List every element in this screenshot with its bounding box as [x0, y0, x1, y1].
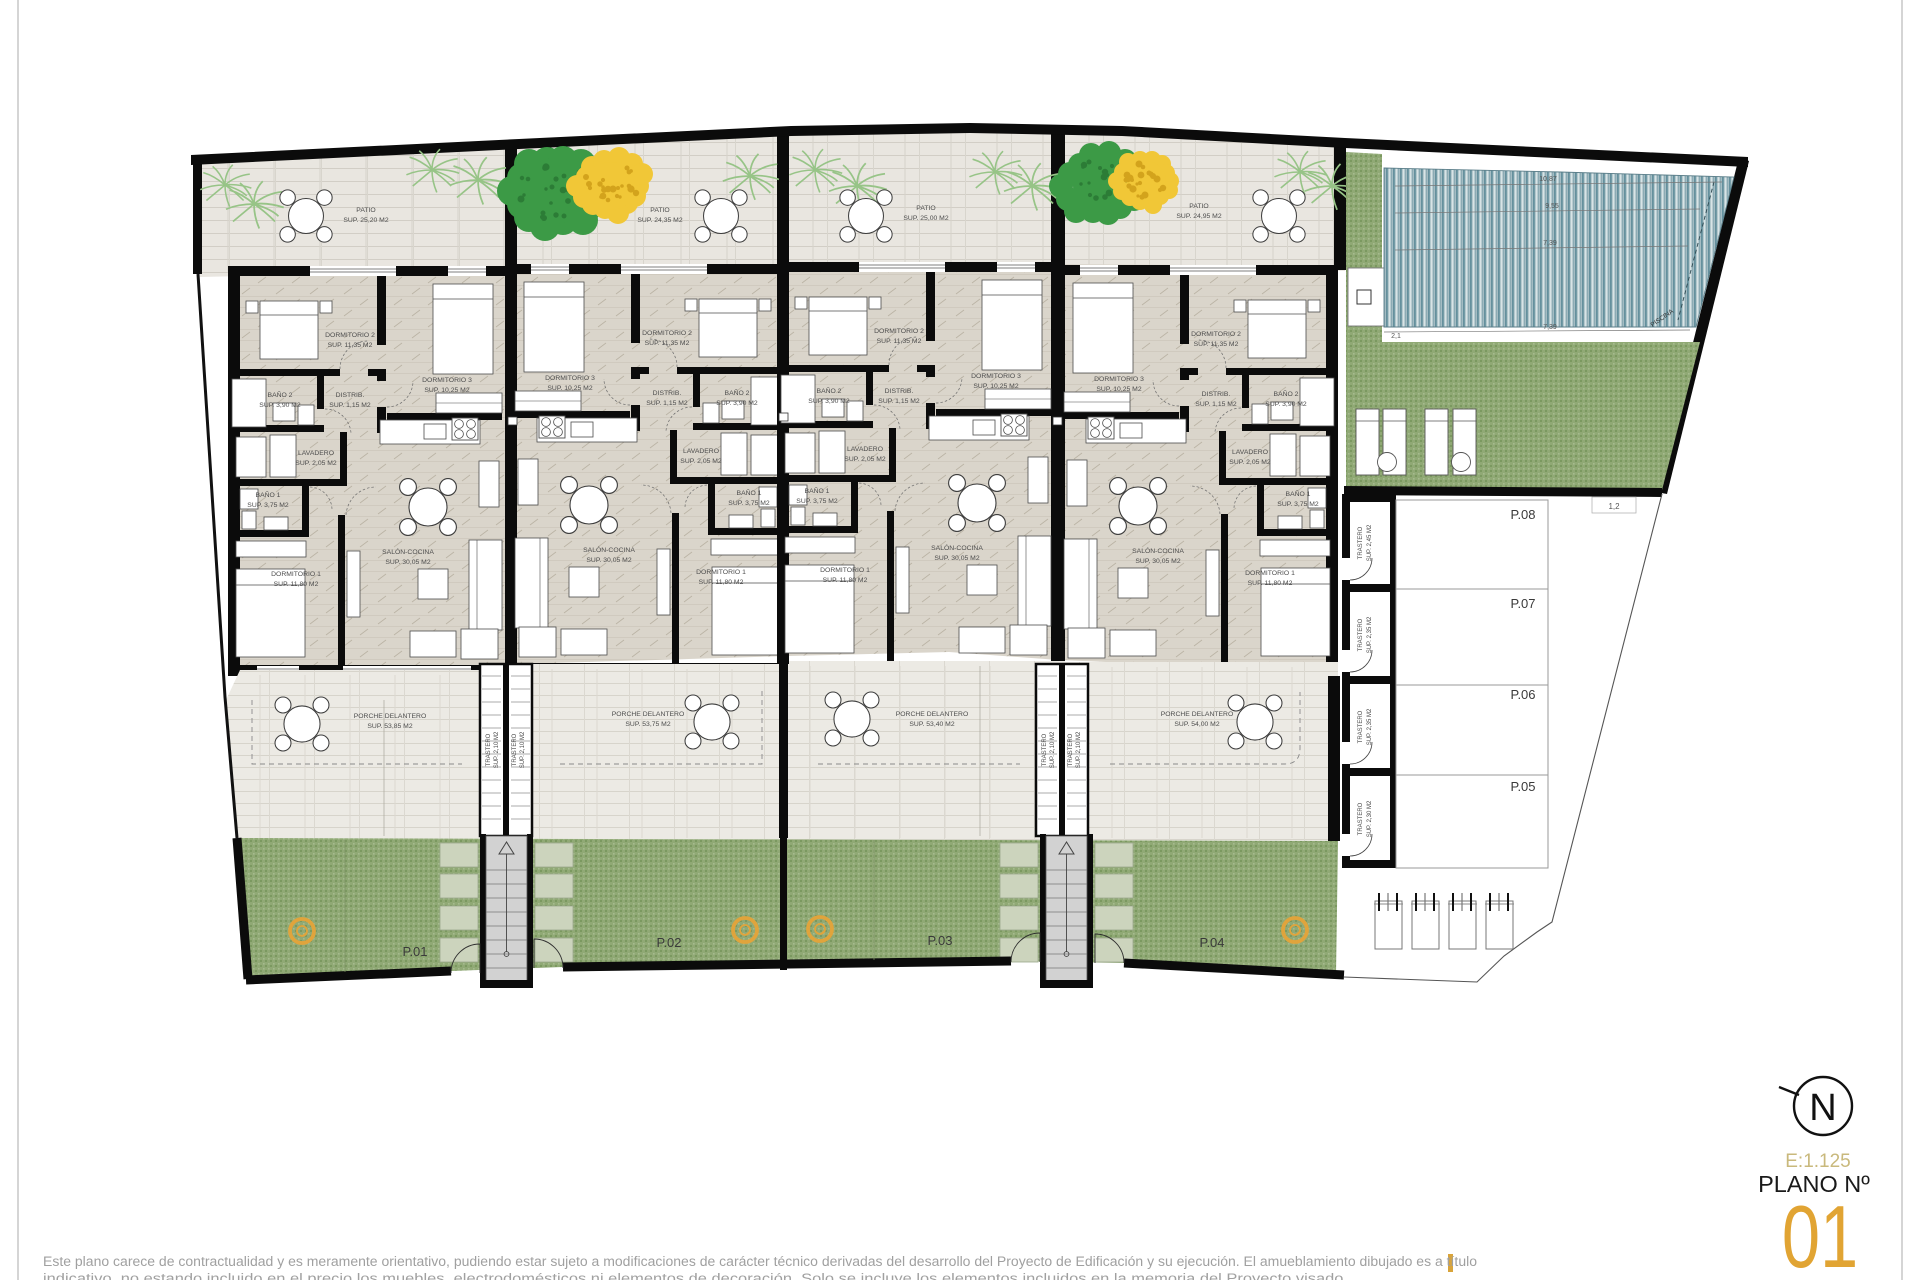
svg-text:9,55: 9,55	[1545, 203, 1559, 210]
svg-text:BAÑO 2: BAÑO 2	[1274, 389, 1299, 398]
svg-text:E:1.125: E:1.125	[1785, 1151, 1851, 1172]
svg-text:SUP. 11,35 M2: SUP. 11,35 M2	[645, 340, 690, 347]
svg-text:SUP. 1,15 M2: SUP. 1,15 M2	[1195, 401, 1237, 408]
svg-text:DORMITORIO 3: DORMITORIO 3	[422, 377, 472, 384]
svg-text:SUP. 2,05 M2: SUP. 2,05 M2	[680, 458, 722, 465]
svg-text:PATIO: PATIO	[1189, 203, 1208, 210]
svg-text:BAÑO 1: BAÑO 1	[737, 488, 762, 497]
svg-text:SUP. 3,90 M2: SUP. 3,90 M2	[259, 402, 301, 409]
svg-text:LAVADERO: LAVADERO	[1232, 449, 1268, 456]
svg-text:P.05: P.05	[1510, 779, 1535, 794]
svg-text:P.03: P.03	[927, 933, 952, 948]
svg-text:SUP. 2,35 M2: SUP. 2,35 M2	[1367, 616, 1373, 653]
svg-text:SUP. 11,35 M2: SUP. 11,35 M2	[1194, 341, 1239, 348]
svg-text:P.07: P.07	[1510, 596, 1535, 611]
svg-text:Este plano carece de contractu: Este plano carece de contractualidad y e…	[43, 1254, 1477, 1269]
svg-text:SUP. 1,15 M2: SUP. 1,15 M2	[646, 400, 688, 407]
svg-text:TRASTERO: TRASTERO	[512, 733, 518, 766]
svg-text:SUP. 3,90 M2: SUP. 3,90 M2	[1265, 401, 1307, 408]
svg-text:LAVADERO: LAVADERO	[683, 448, 719, 455]
svg-text:PATIO: PATIO	[356, 207, 375, 214]
svg-text:SUP. 30,05 M2: SUP. 30,05 M2	[1135, 558, 1180, 565]
svg-text:P.04: P.04	[1199, 935, 1224, 950]
svg-text:BAÑO 1: BAÑO 1	[805, 486, 830, 495]
svg-text:PORCHE DELANTERO: PORCHE DELANTERO	[612, 711, 685, 718]
svg-text:DISTRIB.: DISTRIB.	[653, 390, 682, 397]
svg-text:DORMITORIO 2: DORMITORIO 2	[642, 330, 692, 337]
svg-text:SUP. 11,80 M2: SUP. 11,80 M2	[1248, 580, 1293, 587]
svg-text:SALÓN-COCINA: SALÓN-COCINA	[382, 547, 434, 556]
svg-text:SUP. 10,25 M2: SUP. 10,25 M2	[424, 387, 469, 394]
svg-text:SUP. 24,95 M2: SUP. 24,95 M2	[1176, 213, 1221, 220]
svg-text:PATIO: PATIO	[916, 205, 935, 212]
svg-text:SUP. 30,05 M2: SUP. 30,05 M2	[385, 559, 430, 566]
svg-text:TRASTERO: TRASTERO	[1358, 802, 1364, 835]
svg-text:P.08: P.08	[1510, 507, 1535, 522]
svg-text:BAÑO 1: BAÑO 1	[256, 490, 281, 499]
svg-text:P.02: P.02	[656, 935, 681, 950]
svg-text:2,1: 2,1	[1391, 333, 1401, 340]
svg-text:SUP. 3,75 M2: SUP. 3,75 M2	[728, 500, 770, 507]
svg-text:indicativo, no estando incluid: indicativo, no estando incluido en el pr…	[43, 1271, 1348, 1280]
svg-text:SALÓN-COCINA: SALÓN-COCINA	[583, 545, 635, 554]
svg-text:SUP. 2,10 M2: SUP. 2,10 M2	[520, 731, 526, 768]
svg-text:SUP. 2,10 M2: SUP. 2,10 M2	[1076, 731, 1082, 768]
svg-text:SUP. 25,20 M2: SUP. 25,20 M2	[343, 217, 388, 224]
svg-text:P.06: P.06	[1510, 687, 1535, 702]
svg-text:TRASTERO: TRASTERO	[1358, 618, 1364, 651]
svg-text:BAÑO 1: BAÑO 1	[1286, 489, 1311, 498]
svg-text:BAÑO 2: BAÑO 2	[725, 388, 750, 397]
svg-text:TRASTERO: TRASTERO	[486, 733, 492, 766]
svg-text:DORMITORIO 2: DORMITORIO 2	[325, 332, 375, 339]
svg-text:SUP. 3,90 M2: SUP. 3,90 M2	[808, 398, 850, 405]
svg-text:SUP. 3,75 M2: SUP. 3,75 M2	[796, 498, 838, 505]
svg-text:SUP. 30,05 M2: SUP. 30,05 M2	[586, 557, 631, 564]
svg-text:SUP. 10,25 M2: SUP. 10,25 M2	[1096, 386, 1141, 393]
svg-text:SUP. 11,80 M2: SUP. 11,80 M2	[823, 577, 868, 584]
svg-text:7,39: 7,39	[1543, 240, 1557, 247]
svg-text:SUP. 54,00 M2: SUP. 54,00 M2	[1174, 721, 1219, 728]
svg-text:SUP. 3,75 M2: SUP. 3,75 M2	[247, 502, 289, 509]
svg-text:LAVADERO: LAVADERO	[847, 446, 883, 453]
svg-text:SUP. 2,10 M2: SUP. 2,10 M2	[1050, 731, 1056, 768]
svg-text:PORCHE DELANTERO: PORCHE DELANTERO	[1161, 711, 1234, 718]
svg-text:DORMITORIO 1: DORMITORIO 1	[271, 571, 321, 578]
svg-text:SUP. 10,25 M2: SUP. 10,25 M2	[973, 383, 1018, 390]
svg-text:PATIO: PATIO	[650, 207, 669, 214]
svg-text:SUP. 2,30 M2: SUP. 2,30 M2	[1367, 800, 1373, 837]
svg-text:DORMITORIO 1: DORMITORIO 1	[1245, 570, 1295, 577]
svg-text:TRASTERO: TRASTERO	[1042, 733, 1048, 766]
svg-text:SUP. 11,80 M2: SUP. 11,80 M2	[274, 581, 319, 588]
svg-text:SUP. 1,15 M2: SUP. 1,15 M2	[878, 398, 920, 405]
svg-text:DORMITORIO 2: DORMITORIO 2	[1191, 331, 1241, 338]
svg-text:SUP. 2,10 M2: SUP. 2,10 M2	[494, 731, 500, 768]
svg-text:TRASTERO: TRASTERO	[1068, 733, 1074, 766]
svg-text:DORMITORIO 3: DORMITORIO 3	[971, 373, 1021, 380]
svg-text:SUP. 3,90 M2: SUP. 3,90 M2	[716, 400, 758, 407]
svg-text:PORCHE DELANTERO: PORCHE DELANTERO	[896, 711, 969, 718]
svg-text:SUP. 2,05 M2: SUP. 2,05 M2	[844, 456, 886, 463]
svg-text:1,2: 1,2	[1608, 502, 1620, 511]
svg-text:PORCHE DELANTERO: PORCHE DELANTERO	[354, 713, 427, 720]
svg-text:SUP. 2,05 M2: SUP. 2,05 M2	[1229, 459, 1271, 466]
svg-text:SUP. 11,80 M2: SUP. 11,80 M2	[699, 579, 744, 586]
svg-text:SUP. 53,85 M2: SUP. 53,85 M2	[367, 723, 412, 730]
svg-text:LAVADERO: LAVADERO	[298, 450, 334, 457]
svg-text:TRASTERO: TRASTERO	[1358, 710, 1364, 743]
svg-text:DISTRIB.: DISTRIB.	[1202, 391, 1231, 398]
svg-text:DISTRIB.: DISTRIB.	[336, 392, 365, 399]
svg-text:SALÓN-COCINA: SALÓN-COCINA	[1132, 546, 1184, 555]
svg-text:SUP. 1,15 M2: SUP. 1,15 M2	[329, 402, 371, 409]
svg-text:SUP. 25,00 M2: SUP. 25,00 M2	[903, 215, 948, 222]
svg-text:SUP. 3,75 M2: SUP. 3,75 M2	[1277, 501, 1319, 508]
svg-text:BAÑO 2: BAÑO 2	[817, 386, 842, 395]
svg-text:SUP. 24,35 M2: SUP. 24,35 M2	[637, 217, 682, 224]
svg-text:SUP. 2,05 M2: SUP. 2,05 M2	[295, 460, 337, 467]
svg-text:SALÓN-COCINA: SALÓN-COCINA	[931, 543, 983, 552]
svg-text:DORMITORIO 1: DORMITORIO 1	[820, 567, 870, 574]
svg-text:10,87: 10,87	[1539, 176, 1557, 183]
svg-text:TRASTERO: TRASTERO	[1358, 526, 1364, 559]
svg-text:7,39: 7,39	[1543, 324, 1557, 331]
svg-text:SUP. 10,25 M2: SUP. 10,25 M2	[547, 385, 592, 392]
svg-text:DORMITORIO 3: DORMITORIO 3	[545, 375, 595, 382]
svg-text:DORMITORIO 2: DORMITORIO 2	[874, 328, 924, 335]
svg-text:SUP. 53,75 M2: SUP. 53,75 M2	[625, 721, 670, 728]
svg-text:SUP. 53,40 M2: SUP. 53,40 M2	[909, 721, 954, 728]
svg-text:N: N	[1809, 1087, 1836, 1129]
svg-text:01: 01	[1782, 1188, 1858, 1280]
svg-text:DORMITORIO 1: DORMITORIO 1	[696, 569, 746, 576]
svg-text:SUP. 30,05 M2: SUP. 30,05 M2	[934, 555, 979, 562]
svg-text:P.01: P.01	[402, 944, 427, 959]
svg-text:SUP. 2,35 M2: SUP. 2,35 M2	[1367, 708, 1373, 745]
svg-text:BAÑO 2: BAÑO 2	[268, 390, 293, 399]
svg-text:DISTRIB.: DISTRIB.	[885, 388, 914, 395]
svg-text:SUP. 11,35 M2: SUP. 11,35 M2	[877, 338, 922, 345]
svg-text:SUP. 11,35 M2: SUP. 11,35 M2	[328, 342, 373, 349]
svg-text:DORMITORIO 3: DORMITORIO 3	[1094, 376, 1144, 383]
svg-text:SUP. 2,45 M2: SUP. 2,45 M2	[1367, 524, 1373, 561]
